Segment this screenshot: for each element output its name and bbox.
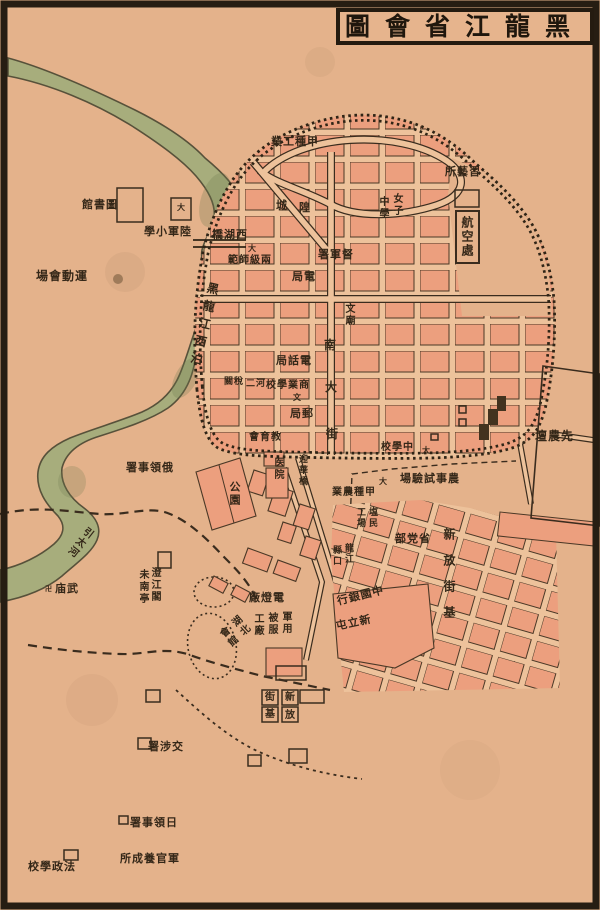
japan-consulate-label: 署事領日 [130, 817, 178, 828]
army-primary-school-label: 學小軍陸 [144, 226, 192, 237]
weinan-pavilion-label: 未南亭 [137, 569, 147, 605]
south-street-char-3: 街 [326, 428, 339, 440]
erhe-label: 二河 [246, 380, 266, 389]
chengjiang-pavilion-label: 澄江閣 [149, 567, 159, 603]
city-god-char-1: 城 [276, 200, 288, 211]
clothing-factory-col-2: 被服 [266, 612, 276, 636]
school-mark-normal: 大 [248, 245, 257, 253]
salt-works-col-left: 工場 [355, 507, 364, 529]
workhouse-label: 所藝習 [445, 166, 481, 177]
officer-training-label: 所成養官軍 [120, 853, 180, 864]
military-temple-label: 庙武 [55, 583, 79, 594]
law-school-label: 校學政法 [28, 861, 76, 872]
electric-bureau-label: 局電 [292, 271, 316, 282]
block-char-fang: 放 [285, 711, 296, 721]
park-label: 公園 [229, 481, 240, 507]
west-bay-river-label: 黑龍江西泊 [188, 281, 220, 371]
historical-city-map: 圖會省江龍黑 館書圖場會動運學小軍陸大橋湖西範師級兩大業工種甲所藝習航空處城隍女… [0, 0, 600, 910]
middle-school-label: 校學中 [381, 443, 414, 453]
block-char-jie: 街 [265, 693, 276, 703]
longjiang-county-col-right: 龍江 [343, 543, 352, 565]
agri-school-label: 業農種甲 [332, 488, 376, 498]
electric-plant-label: 廠燈電 [249, 592, 285, 603]
salt-works-col-right: 塩民 [367, 507, 376, 529]
school-mark-army: 大 [177, 204, 186, 212]
yinghua-bridge-label: 迎華橋 [297, 454, 306, 487]
temple-mark: 卍 [45, 586, 53, 593]
library-label: 館書圖 [82, 199, 118, 210]
block-char-ji: 基 [265, 710, 276, 720]
bank-of-china-label: 行銀國中 [336, 584, 385, 606]
xiannongtan-label: 壇農先 [535, 430, 574, 442]
normal-school-label: 範師級兩 [228, 256, 272, 266]
russian-consulate-label: 署事領俄 [126, 462, 174, 473]
yintai-river-label: 引太河 [64, 524, 94, 559]
block-char-xin: 新 [285, 693, 296, 703]
industrial-school-label: 業工種甲 [271, 136, 319, 147]
new-district-label: 新放街基 [443, 528, 455, 632]
post-office-label: 局郵 [290, 408, 314, 419]
aviation-office-label: 航空處 [461, 216, 473, 258]
education-assoc-label: 會育教 [249, 433, 282, 443]
map-labels-layer: 館書圖場會動運學小軍陸大橋湖西範師級兩大業工種甲所藝習航空處城隍女子中學署軍督局… [0, 0, 600, 910]
south-street-char-2: 大 [325, 381, 338, 393]
military-governor-label: 署軍督 [318, 249, 354, 260]
party-hq-label: 部党省 [395, 533, 431, 544]
girls-school-col-right: 女子 [391, 193, 401, 217]
agri-station-label: 場驗試事農 [400, 473, 460, 484]
xinlitun-label: 屯立新 [335, 614, 373, 632]
telephone-bureau-label: 局話電 [276, 355, 312, 366]
longjiang-county-col-left: 縣口 [331, 545, 340, 567]
clothing-factory-col-1: 軍用 [280, 611, 290, 635]
city-god-char-2: 隍 [299, 202, 311, 213]
girls-school-col-left: 中學 [377, 196, 387, 220]
negotiations-office-label: 署涉交 [148, 741, 184, 752]
customs-label: 關稅 [224, 378, 244, 387]
confucian-temple-label: 文廟 [343, 303, 353, 327]
clothing-factory-col-3: 工廠 [252, 613, 262, 637]
south-street-char-1: 南 [324, 339, 337, 351]
west-lake-bridge-label: 橋湖西 [212, 229, 248, 240]
commercial-school-label: 校學業商 [266, 381, 310, 391]
sports-ground-label: 場會動運 [36, 270, 88, 282]
small-wen-label: 文 [293, 394, 302, 402]
school-mark-agri: 大 [379, 478, 388, 486]
hospital-label: 医院 [272, 457, 282, 481]
school-mark-middle: 大 [422, 447, 431, 455]
